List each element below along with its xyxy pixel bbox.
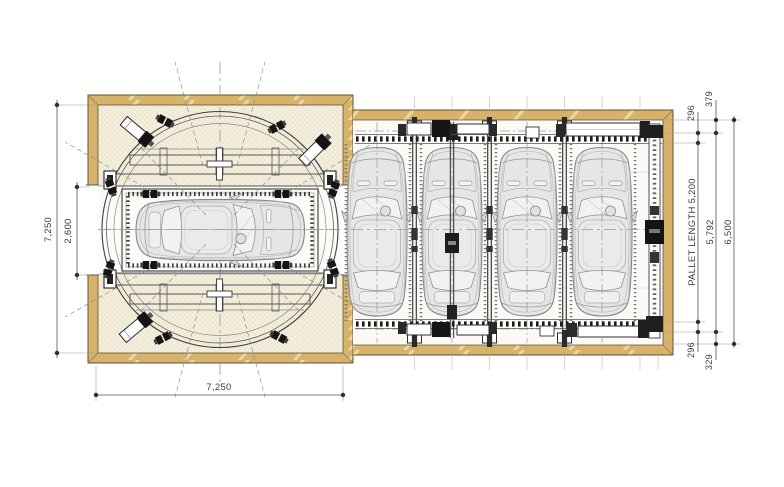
- dim-left-overall: 7,250: [43, 217, 54, 242]
- dim-right-bottom-offset: 329: [704, 354, 714, 370]
- dim-pallet-length: PALLET LENGTH 5,200: [687, 178, 698, 286]
- dim-bottom-overall: 7,250: [206, 382, 231, 393]
- dim-right-bottom-gap: 296: [686, 342, 696, 358]
- plan-canvas: 7,250 2,600 7,250 296 379 PALLET LENGTH …: [0, 0, 784, 487]
- dim-right-overall: 6,500: [723, 219, 734, 244]
- dim-right-top-offset: 379: [704, 91, 714, 107]
- car-on-turntable: [136, 194, 305, 266]
- dim-right-top-gap: 296: [686, 105, 696, 121]
- parking-plan-drawing: 7,250 2,600 7,250 296 379 PALLET LENGTH …: [0, 0, 784, 487]
- entry-opening: [86, 185, 99, 275]
- dim-right-span: 5,792: [705, 219, 716, 244]
- dim-left-opening: 2,600: [63, 218, 74, 243]
